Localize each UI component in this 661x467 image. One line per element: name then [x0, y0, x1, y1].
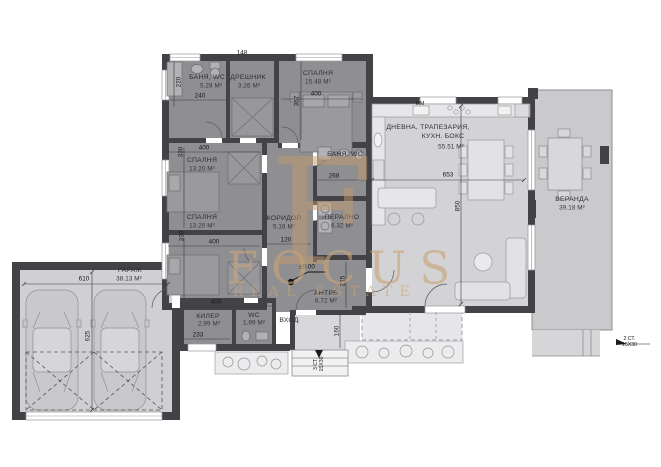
closet-shelves	[232, 98, 273, 136]
garage-car-1	[23, 290, 81, 410]
planter-left	[215, 352, 288, 374]
garage-car-2	[91, 290, 149, 410]
floor-plan-drawing	[0, 0, 661, 467]
planter-right	[345, 341, 463, 363]
floor-plan-page: БАНЯ, WC 5.28 М² ДРЕШНИК 3.26 М² СПАЛНЯ …	[0, 0, 661, 467]
dining-table	[459, 140, 513, 200]
